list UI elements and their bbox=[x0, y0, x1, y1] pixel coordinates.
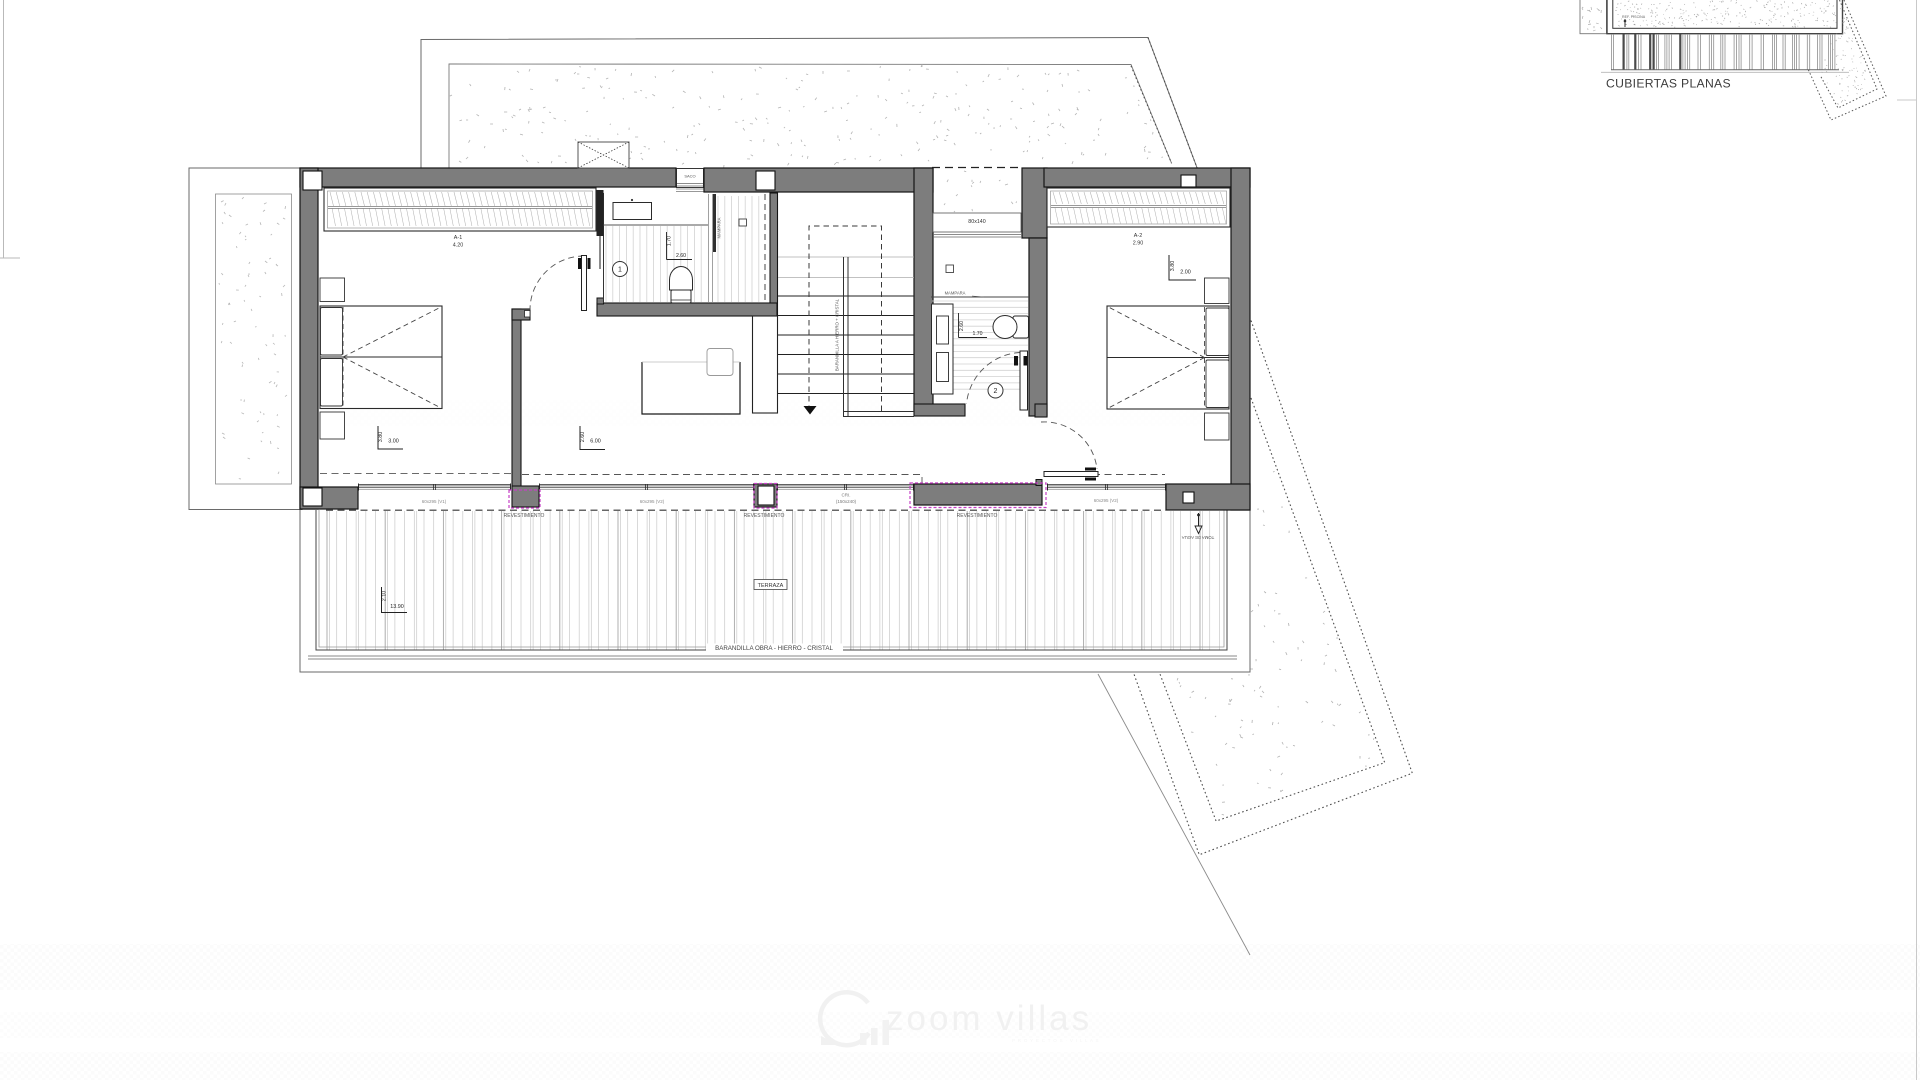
svg-text:60x295 (V2): 60x295 (V2) bbox=[1094, 498, 1119, 503]
svg-text:CRI.: CRI. bbox=[842, 493, 851, 498]
svg-text:zoom villas: zoom villas bbox=[886, 999, 1092, 1038]
svg-text:A-2: A-2 bbox=[1134, 233, 1142, 239]
svg-text:MAMPARA: MAMPARA bbox=[717, 217, 722, 238]
svg-text:REVESTIMIENTO: REVESTIMIENTO bbox=[744, 513, 785, 519]
svg-text:CUBIERTAS PLANAS: CUBIERTAS PLANAS bbox=[1606, 76, 1731, 90]
svg-text:6.00: 6.00 bbox=[590, 439, 601, 445]
svg-text:2.60: 2.60 bbox=[959, 321, 965, 331]
svg-text:60x295 (V2): 60x295 (V2) bbox=[640, 499, 665, 504]
svg-text:REF. PISCINA: REF. PISCINA bbox=[1622, 15, 1646, 19]
svg-text:(150x240): (150x240) bbox=[836, 499, 857, 504]
svg-text:3.00: 3.00 bbox=[388, 439, 399, 445]
svg-text:2: 2 bbox=[994, 388, 998, 395]
svg-text:1.70: 1.70 bbox=[667, 236, 673, 246]
svg-text:1.70: 1.70 bbox=[972, 331, 982, 337]
svg-text:13.90: 13.90 bbox=[390, 604, 404, 610]
svg-text:A-1: A-1 bbox=[454, 235, 462, 241]
svg-text:2.60: 2.60 bbox=[580, 432, 586, 443]
svg-text:3.80: 3.80 bbox=[378, 432, 384, 443]
svg-text:BARANDILLA OBRA - HIERRO - CRI: BARANDILLA OBRA - HIERRO - CRISTAL bbox=[715, 645, 833, 652]
svg-text:2.10: 2.10 bbox=[382, 591, 388, 602]
svg-text:MAMPARA: MAMPARA bbox=[945, 291, 966, 296]
svg-text:2.60: 2.60 bbox=[676, 253, 686, 259]
svg-text:TERRAZA: TERRAZA bbox=[758, 583, 784, 589]
svg-text:4.20: 4.20 bbox=[453, 243, 464, 249]
svg-text:REVESTIMIENTO: REVESTIMIENTO bbox=[504, 513, 545, 519]
svg-text:1: 1 bbox=[618, 267, 622, 274]
svg-text:2.00: 2.00 bbox=[1180, 270, 1191, 276]
svg-text:TOMA DE AGUA: TOMA DE AGUA bbox=[1182, 535, 1215, 540]
svg-text:2.90: 2.90 bbox=[1133, 241, 1144, 247]
svg-text:3.80: 3.80 bbox=[1170, 261, 1176, 272]
svg-text:BARANDILLA A HIERRO + CRISTA: BARANDILLA A HIERRO + CRISTAL bbox=[835, 298, 840, 371]
svg-text:P R O Y E C T O S · V I L L A: P R O Y E C T O S · V I L L A S bbox=[1012, 1038, 1099, 1043]
svg-text:REVESTIMIENTO: REVESTIMIENTO bbox=[957, 513, 998, 519]
svg-text:SACO: SACO bbox=[684, 174, 695, 179]
svg-text:60x295 (V1): 60x295 (V1) bbox=[422, 499, 447, 504]
svg-text:80x140: 80x140 bbox=[968, 219, 985, 225]
